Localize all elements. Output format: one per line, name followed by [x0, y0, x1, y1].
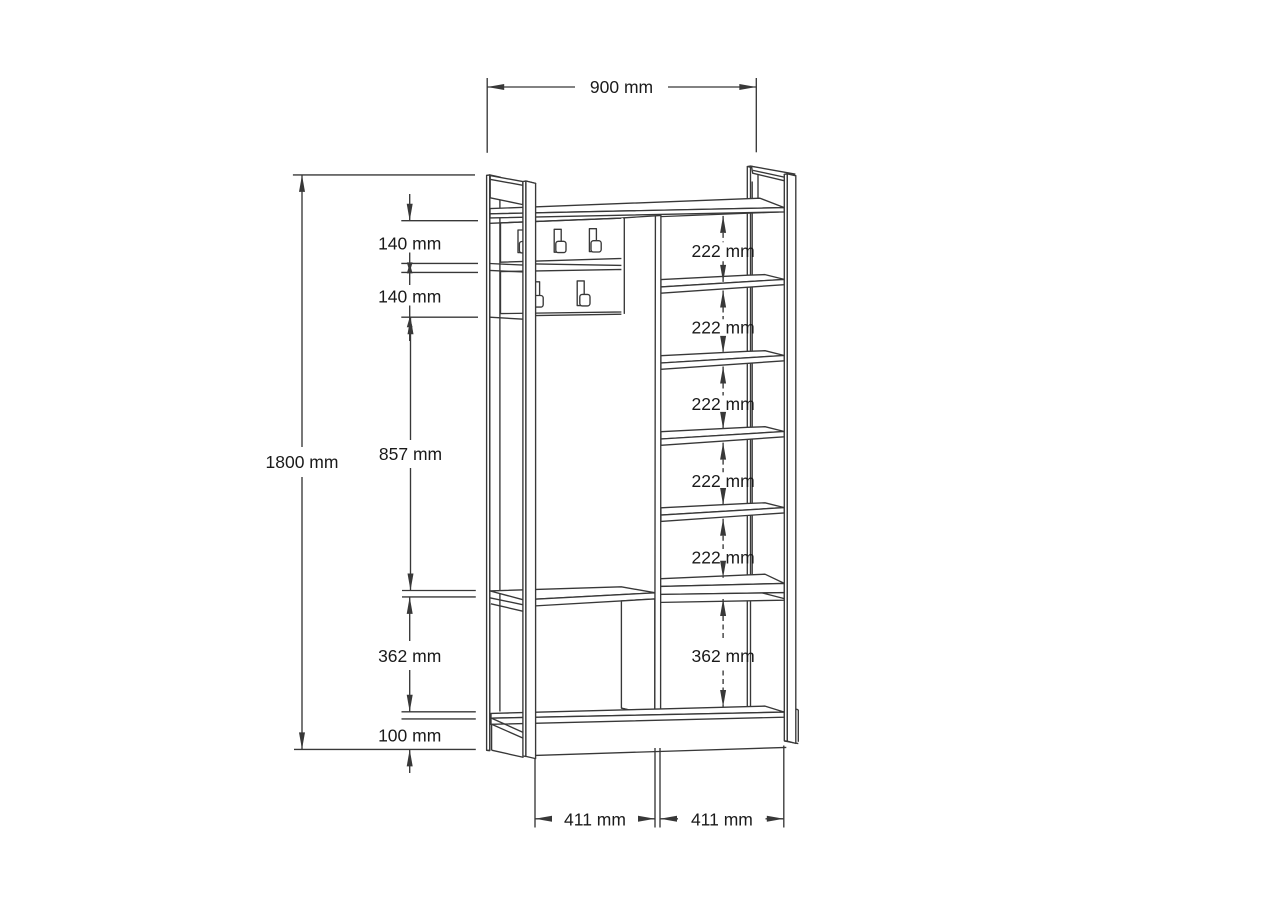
- svg-text:222 mm: 222 mm: [691, 548, 754, 568]
- svg-text:857 mm: 857 mm: [379, 444, 442, 464]
- svg-text:100 mm: 100 mm: [378, 725, 441, 745]
- svg-text:411 mm: 411 mm: [691, 809, 753, 829]
- svg-text:222 mm: 222 mm: [691, 318, 754, 338]
- svg-text:362 mm: 362 mm: [691, 646, 754, 666]
- svg-text:140 mm: 140 mm: [378, 286, 441, 306]
- svg-text:1800 mm: 1800 mm: [266, 452, 339, 472]
- svg-text:222 mm: 222 mm: [691, 241, 754, 261]
- svg-text:222 mm: 222 mm: [691, 471, 754, 491]
- svg-text:900 mm: 900 mm: [590, 77, 653, 97]
- svg-text:411 mm: 411 mm: [564, 809, 626, 829]
- svg-text:362 mm: 362 mm: [378, 646, 441, 666]
- svg-text:140 mm: 140 mm: [378, 234, 441, 254]
- svg-text:222 mm: 222 mm: [691, 394, 754, 414]
